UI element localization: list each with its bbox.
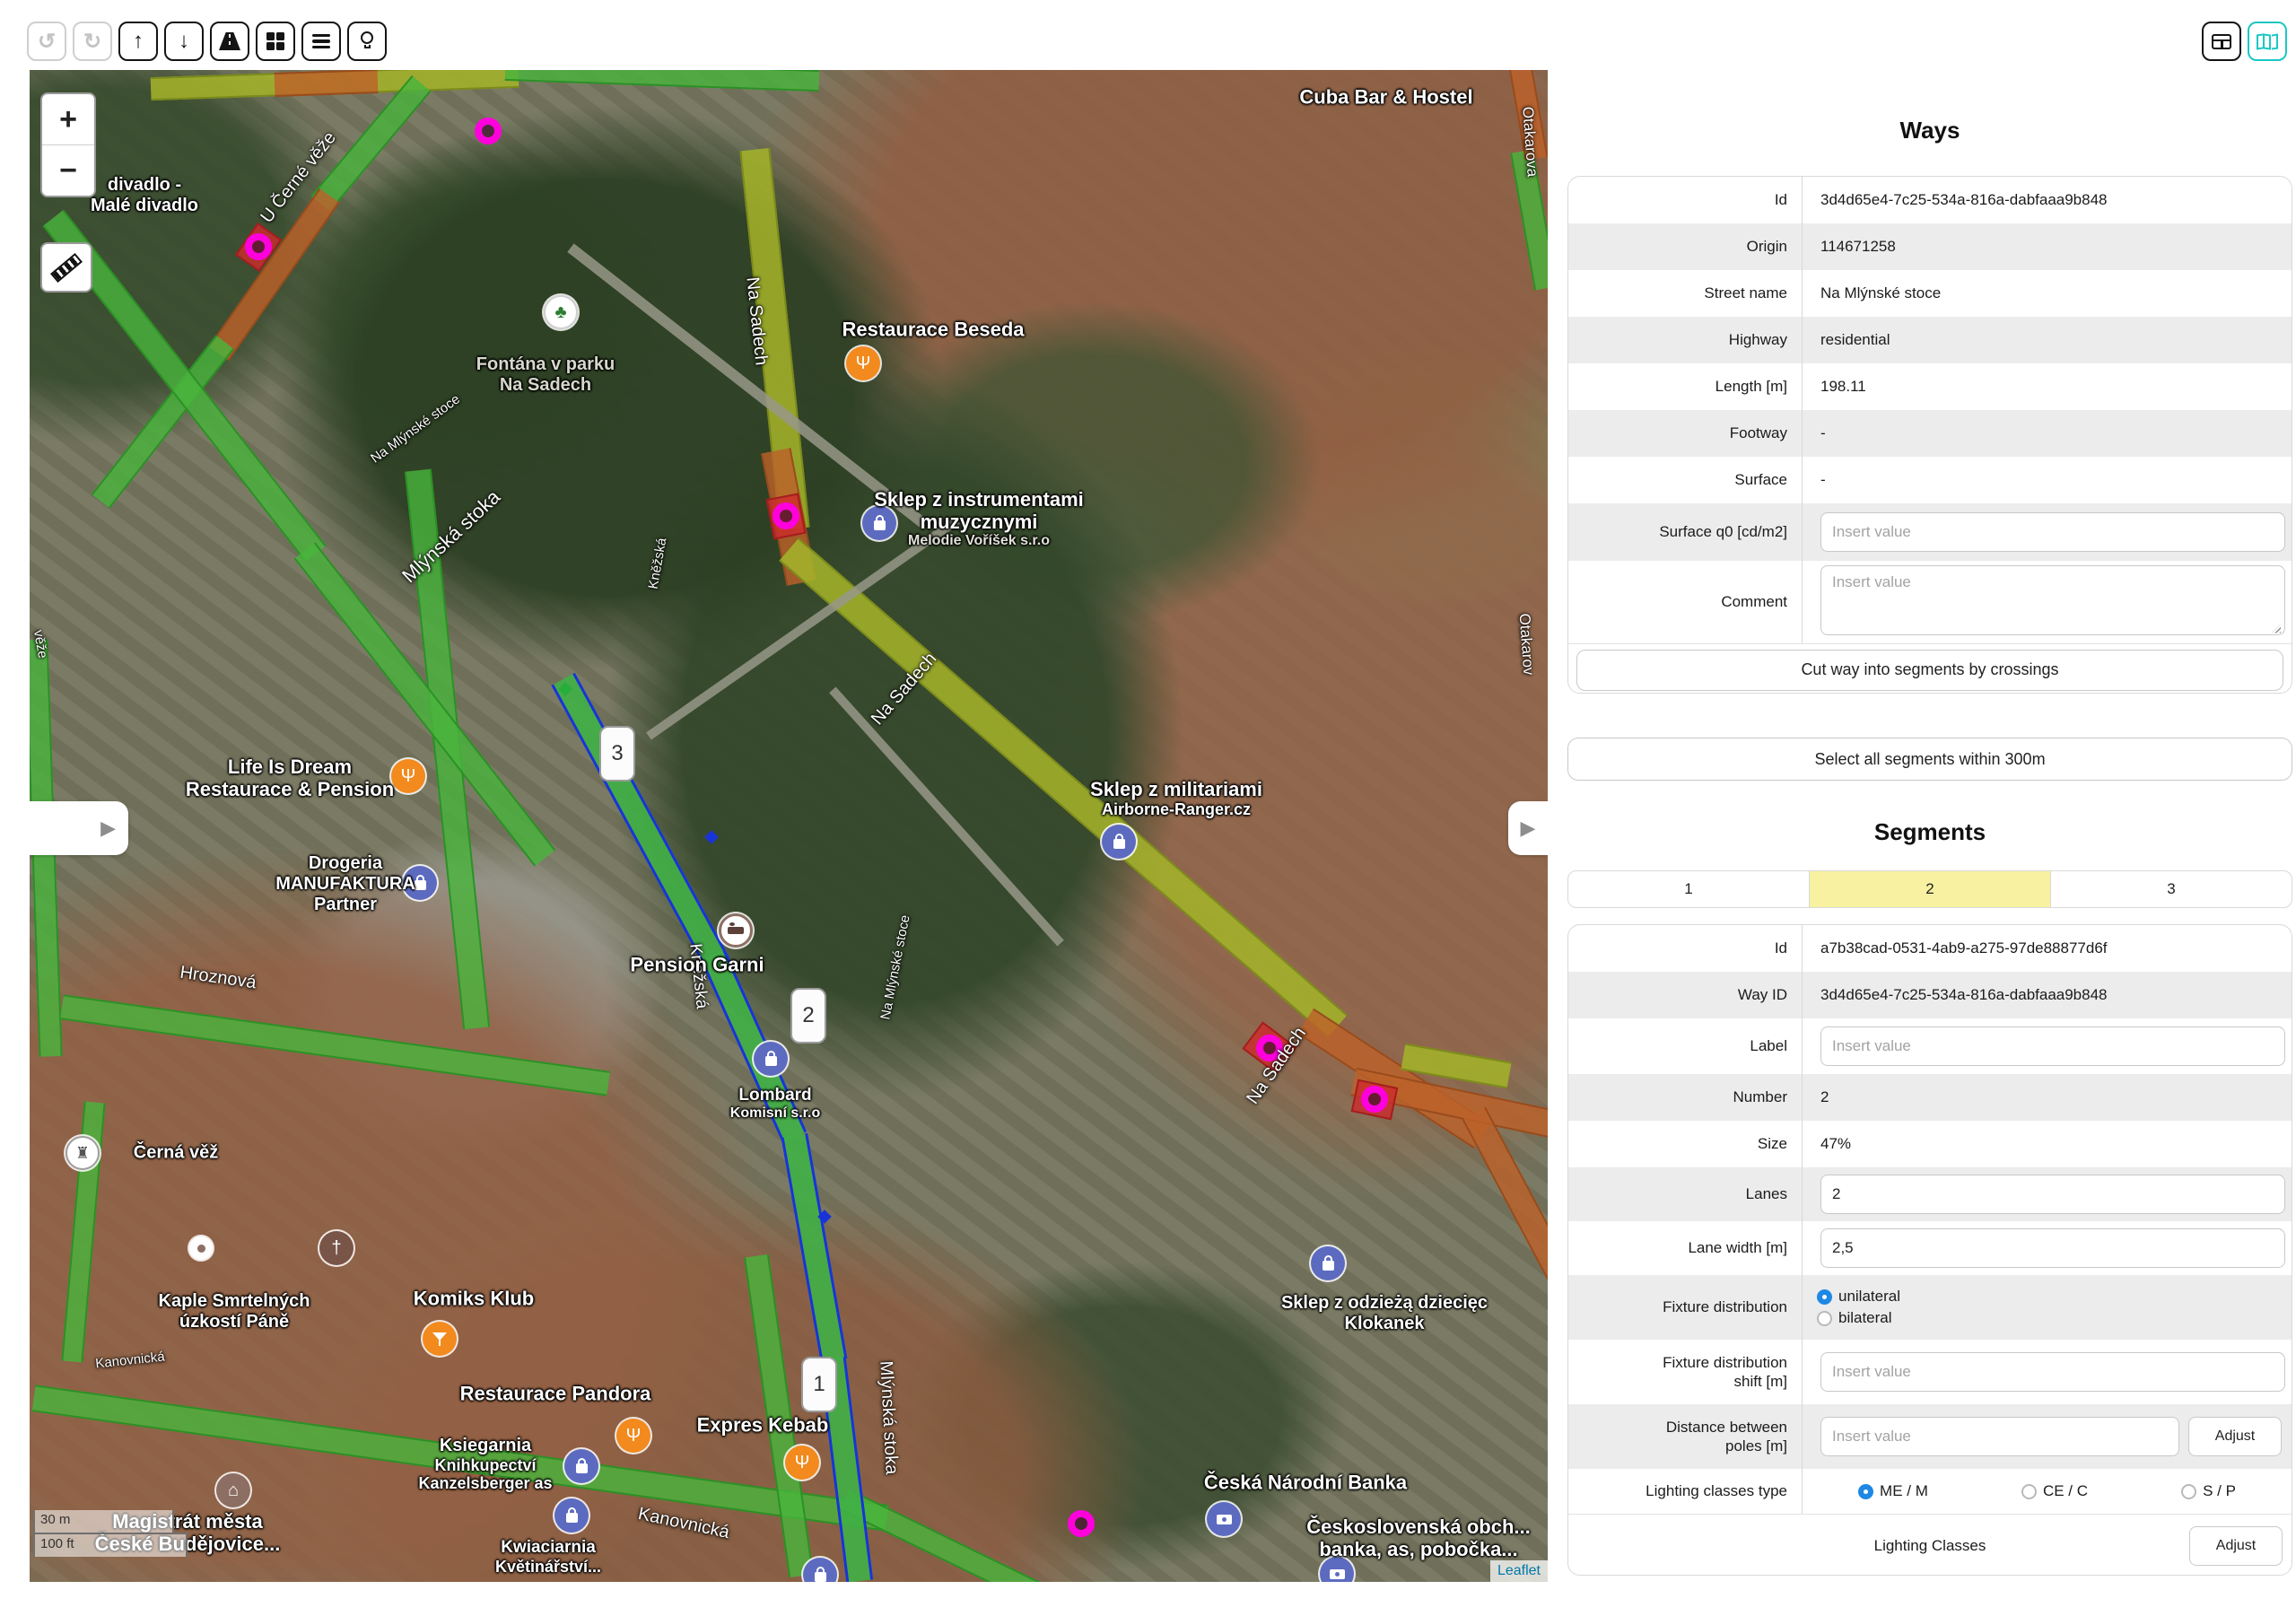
church-poi-icon: † — [319, 1231, 354, 1265]
pole-distance-input[interactable] — [1820, 1417, 2179, 1456]
row-label: Label — [1568, 1018, 1803, 1074]
row-label: Fixture distribution — [1568, 1275, 1803, 1340]
selected-way-segment[interactable] — [781, 1133, 847, 1363]
table-row: Street name Na Mlýnské stoce — [1568, 270, 2292, 317]
poi-name-label: Kaple Smrtelnýchúzkostí Páně — [159, 1291, 310, 1332]
row-label: Street name — [1568, 270, 1803, 317]
segment-id-value: a7b38cad-0531-4ab9-a275-97de88877d6f — [1803, 925, 2292, 972]
segment-tabs: 1 2 3 — [1567, 870, 2292, 908]
restaurant-poi-icon: Ψ — [616, 1419, 650, 1453]
restaurant-poi-icon: Ψ — [785, 1446, 819, 1480]
radio-label: CE / C — [2043, 1482, 2088, 1500]
row-label: Lanes — [1568, 1167, 1803, 1221]
table-row: Footway - — [1568, 410, 2292, 457]
row-label: poles [m] — [1725, 1437, 1787, 1455]
map-canvas[interactable]: 321Ψ♣Ψ♜†ΨΨ⌂U Černé věžeNa SadechNa Mlýns… — [30, 70, 1548, 1582]
radio-icon — [1817, 1311, 1832, 1326]
restaurant-poi-icon: Ψ — [846, 346, 880, 380]
radio-selected-icon — [1817, 1289, 1832, 1305]
dot-poi-icon — [189, 1236, 213, 1260]
lighting-type-sp-radio[interactable]: S / P — [2181, 1482, 2236, 1500]
shop-poi-icon — [1311, 1246, 1345, 1280]
map-way-orange[interactable] — [274, 70, 378, 96]
selected-way-segment[interactable] — [551, 673, 729, 971]
street-name-label: Kanovnická — [95, 1349, 166, 1371]
poi-name-label: Česká Národní Banka — [1204, 1471, 1407, 1493]
bar-poi-icon — [423, 1322, 457, 1356]
radio-label: unilateral — [1838, 1288, 1900, 1306]
street-lighting-planner-app: ↺ ↻ ↑ ↓ 321Ψ♣Ψ♜†ΨΨ⌂U Černé věžeNa Sadech… — [0, 0, 2296, 1616]
left-panel-expand-tab[interactable]: ▶ — [30, 801, 128, 855]
road-tool-button[interactable] — [210, 22, 249, 61]
right-panel-expand-tab[interactable]: ▶ — [1508, 801, 1548, 855]
zoom-out-button[interactable]: − — [42, 145, 94, 196]
shop-poi-icon — [554, 1498, 589, 1533]
poi-name-label: Československá obch...banka, as, pobočka… — [1306, 1516, 1530, 1560]
segment-number-value: 2 — [1803, 1074, 2292, 1121]
shop-poi-icon — [564, 1449, 598, 1483]
museum-poi-icon: ⌂ — [216, 1473, 250, 1507]
select-segments-button[interactable]: Select all segments within 300m — [1567, 738, 2292, 781]
street-name-label: Otakarov — [1515, 613, 1538, 676]
poi-name-label: Fontána v parkuNa Sadech — [476, 354, 615, 396]
zoom-in-button[interactable]: + — [42, 94, 94, 145]
table-row: Surface - — [1568, 457, 2292, 503]
undo-button[interactable]: ↺ — [27, 22, 66, 61]
radio-selected-icon — [1858, 1484, 1873, 1499]
radio-icon — [2021, 1484, 2037, 1499]
arrow-up-icon: ↑ — [133, 29, 144, 54]
poi-name-label: Expres Kebab — [697, 1413, 829, 1436]
ways-table: Id 3d4d65e4-7c25-534a-816a-dabfaaa9b848 … — [1567, 176, 2292, 694]
table-row: Comment — [1568, 561, 2292, 643]
map-scale-control: 30 m 100 ft — [33, 1510, 188, 1557]
poi-name-label: Komiks Klub — [414, 1287, 534, 1309]
poi-name-label: Sklep z instrumentamimuzycznymiMelodie V… — [874, 488, 1084, 549]
segment-number-badge[interactable]: 3 — [599, 726, 635, 782]
radio-label: bilateral — [1838, 1309, 1892, 1327]
segment-tab-2[interactable]: 2 — [1809, 871, 2050, 907]
table-row: Label — [1568, 1018, 2292, 1074]
shop-poi-icon — [1102, 825, 1136, 859]
ruler-icon — [50, 252, 83, 282]
properties-panel: Ways Id 3d4d65e4-7c25-534a-816a-dabfaaa9… — [1567, 0, 2292, 1616]
redo-icon: ↻ — [83, 29, 101, 55]
table-row: Distance between poles [m] Adjust — [1568, 1404, 2292, 1469]
lane-width-input[interactable] — [1820, 1228, 2285, 1268]
table-row: Length [m] 198.11 — [1568, 363, 2292, 410]
lighting-type-me-radio[interactable]: ME / M — [1858, 1482, 1928, 1500]
street-name-label: Na Mlýnské stoce — [368, 391, 463, 466]
segments-title: Segments — [1567, 818, 2292, 846]
segment-table: Id a7b38cad-0531-4ab9-a275-97de88877d6f … — [1567, 924, 2292, 1576]
poi-name-label: Restaurace Beseda — [842, 318, 1024, 340]
poi-name-label: Cuba Bar & Hostel — [1299, 85, 1472, 108]
arrow-down-icon: ↓ — [179, 29, 189, 54]
scale-imperial: 100 ft — [33, 1533, 188, 1557]
table-row: Lighting classes type ME / M CE / C S / … — [1568, 1469, 2292, 1514]
poi-name-label: Černá věž — [134, 1143, 219, 1164]
lighting-tool-button[interactable] — [347, 22, 387, 61]
table-row: Lane width [m] — [1568, 1221, 2292, 1275]
street-name-label: Mlýnská stoka — [875, 1360, 902, 1475]
redo-button[interactable]: ↻ — [73, 22, 112, 61]
adjust-lighting-classes-button[interactable]: Adjust — [2189, 1526, 2283, 1566]
grid-icon — [266, 32, 285, 51]
table-row: Id a7b38cad-0531-4ab9-a275-97de88877d6f — [1568, 925, 2292, 972]
shop-poi-icon — [803, 1558, 837, 1582]
poi-name-label: Sklep z odzieżą dziecięcKlokanek — [1281, 1293, 1488, 1334]
tree-poi-icon: ♣ — [544, 295, 578, 329]
layers-icon — [312, 34, 330, 49]
fixture-shift-input[interactable] — [1820, 1352, 2285, 1392]
lightbulb-icon — [360, 31, 374, 51]
map-way-green[interactable] — [60, 994, 610, 1096]
bank-poi-icon — [1207, 1502, 1241, 1536]
crossing-marker[interactable] — [475, 118, 502, 144]
move-down-button[interactable]: ↓ — [164, 22, 204, 61]
segment-tab-1[interactable]: 1 — [1568, 871, 1809, 907]
table-row: Fixture distribution unilateral bilatera… — [1568, 1275, 2292, 1340]
table-row: Way ID 3d4d65e4-7c25-534a-816a-dabfaaa9b… — [1568, 972, 2292, 1018]
crossing-marker[interactable] — [773, 502, 799, 529]
comment-textarea[interactable] — [1820, 565, 2285, 635]
street-name-label: Kněžská — [646, 537, 670, 590]
bank-poi-icon — [1320, 1557, 1354, 1582]
street-name-label: Na Mlýnské stoce — [877, 913, 912, 1020]
fixture-unilateral-radio[interactable]: unilateral — [1817, 1288, 1900, 1306]
map-way-gray — [829, 686, 1064, 946]
road-icon — [219, 32, 240, 50]
chevron-right-icon: ▶ — [100, 817, 116, 840]
way-footway-value: - — [1803, 410, 2292, 457]
table-row: Number 2 — [1568, 1074, 2292, 1121]
poi-name-label: DrogeriaMANUFAKTURAPartner — [275, 853, 415, 914]
street-name-label: Hroznová — [179, 963, 258, 994]
fixture-bilateral-radio[interactable]: bilateral — [1817, 1309, 1892, 1327]
undo-icon: ↺ — [38, 29, 56, 55]
map-way-orange[interactable] — [1462, 1107, 1548, 1298]
crossing-marker[interactable] — [1361, 1086, 1388, 1113]
ways-title: Ways — [1567, 117, 2292, 144]
poi-name-label: Pension Garni — [630, 953, 764, 975]
move-up-button[interactable]: ↑ — [118, 22, 158, 61]
way-surface-value: - — [1803, 457, 2292, 503]
street-name-label: Kanovnická — [636, 1504, 731, 1543]
row-label: Lighting classes type — [1568, 1469, 1803, 1514]
way-vertex-handle[interactable] — [704, 830, 719, 844]
row-label: Fixture distribution — [1663, 1353, 1787, 1372]
segment-number-badge[interactable]: 1 — [801, 1357, 837, 1412]
row-label: Size — [1568, 1121, 1803, 1167]
row-label: Way ID — [1568, 972, 1803, 1018]
row-label: Origin — [1568, 223, 1803, 270]
row-label: Lane width [m] — [1568, 1221, 1803, 1275]
row-label: Footway — [1568, 410, 1803, 457]
table-row: Origin 114671258 — [1568, 223, 2292, 270]
poi-name-label: Life Is DreamRestaurace & Pension — [186, 756, 394, 800]
crossing-marker[interactable] — [1068, 1510, 1095, 1537]
table-row: Size 47% — [1568, 1121, 2292, 1167]
table-row: Fixture distribution shift [m] — [1568, 1340, 2292, 1404]
lighting-classes-label: Lighting Classes — [1874, 1537, 1986, 1555]
radio-label: ME / M — [1880, 1482, 1928, 1500]
row-label: Id — [1568, 925, 1803, 972]
map-way-green[interactable] — [839, 1489, 1059, 1582]
adjust-pole-distance-button[interactable]: Adjust — [2188, 1417, 2282, 1456]
measure-button[interactable] — [40, 242, 92, 293]
surface-q0-input[interactable] — [1820, 512, 2285, 552]
way-origin-value: 114671258 — [1803, 223, 2292, 270]
way-street-name-value: Na Mlýnské stoce — [1803, 270, 2292, 317]
row-label: shift [m] — [1733, 1372, 1787, 1391]
poi-name-label: Sklep z militariamiAirborne-Ranger.cz — [1090, 778, 1262, 819]
restaurant-poi-icon: Ψ — [391, 759, 425, 793]
row-label: Length [m] — [1568, 363, 1803, 410]
lighting-type-ce-radio[interactable]: CE / C — [2021, 1482, 2088, 1500]
poi-name-label: LombardKomisní s.r.o — [730, 1086, 820, 1122]
shop-poi-icon — [754, 1042, 788, 1076]
table-row: Highway residential — [1568, 317, 2292, 363]
poi-name-label: KsiegarniaKnihkupectvíKanzelsberger as — [418, 1436, 552, 1493]
segment-number-badge[interactable]: 2 — [790, 988, 826, 1044]
way-highway-value: residential — [1803, 317, 2292, 363]
row-label: Highway — [1568, 317, 1803, 363]
segment-label-input[interactable] — [1820, 1026, 2285, 1066]
radio-label: S / P — [2203, 1482, 2236, 1500]
poi-name-label: Restaurace Pandora — [460, 1382, 651, 1404]
table-row: Lanes — [1568, 1167, 2292, 1221]
row-label: Number — [1568, 1074, 1803, 1121]
lanes-input[interactable] — [1820, 1175, 2285, 1214]
scale-metric: 30 m — [33, 1510, 174, 1534]
row-label: Distance between — [1666, 1418, 1787, 1437]
cut-way-button[interactable]: Cut way into segments by crossings — [1576, 650, 2283, 691]
grid-tool-button[interactable] — [256, 22, 295, 61]
zoom-control: + − — [40, 92, 96, 197]
way-id-value: 3d4d65e4-7c25-534a-816a-dabfaaa9b848 — [1803, 177, 2292, 223]
poi-name-label: KwiaciarniaKvětinářství... — [495, 1538, 601, 1576]
way-length-value: 198.11 — [1803, 363, 2292, 410]
segment-size-value: 47% — [1803, 1121, 2292, 1167]
row-label: Surface — [1568, 457, 1803, 503]
segment-way-id-value: 3d4d65e4-7c25-534a-816a-dabfaaa9b848 — [1803, 972, 2292, 1018]
map-way-green[interactable] — [505, 70, 820, 92]
layers-tool-button[interactable] — [301, 22, 341, 61]
chevron-right-icon: ▶ — [1521, 817, 1536, 840]
row-label: Comment — [1568, 561, 1803, 643]
row-label: Surface q0 [cd/m2] — [1568, 503, 1803, 561]
leaflet-attribution[interactable]: Leaflet — [1490, 1560, 1548, 1582]
segment-tab-3[interactable]: 3 — [2050, 871, 2292, 907]
table-row: Id 3d4d65e4-7c25-534a-816a-dabfaaa9b848 — [1568, 177, 2292, 223]
table-row: Surface q0 [cd/m2] — [1568, 503, 2292, 561]
map-overlays: 321Ψ♣Ψ♜†ΨΨ⌂U Černé věžeNa SadechNa Mlýns… — [30, 70, 1548, 1582]
bed-poi-icon — [719, 913, 753, 948]
row-label: Id — [1568, 177, 1803, 223]
crossing-marker[interactable] — [245, 233, 272, 260]
radio-icon — [2181, 1484, 2196, 1499]
tower-poi-icon: ♜ — [65, 1136, 100, 1170]
poi-name-label: divadlo -Malé divadlo — [91, 175, 198, 216]
